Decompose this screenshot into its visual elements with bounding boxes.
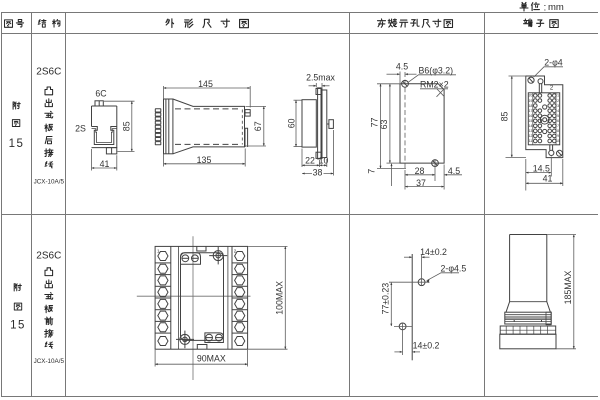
svg-text:B6(φ3.2): B6(φ3.2) (419, 66, 454, 76)
svg-text:8: 8 (557, 129, 559, 133)
svg-text:41: 41 (543, 174, 553, 184)
svg-text:4.5: 4.5 (448, 166, 460, 176)
svg-text:1: 1 (557, 94, 559, 98)
svg-text:11: 11 (529, 139, 533, 143)
svg-text:20: 20 (529, 94, 533, 98)
svg-text:mm: mm (548, 2, 564, 13)
svg-text:67: 67 (253, 121, 263, 131)
svg-text:28: 28 (415, 166, 425, 176)
svg-text:10: 10 (319, 156, 329, 166)
svg-text:15: 15 (529, 119, 533, 123)
svg-text:14±0.2: 14±0.2 (413, 341, 440, 351)
svg-text:2.5max: 2.5max (306, 73, 335, 83)
svg-text:15: 15 (9, 138, 25, 150)
svg-text:14±0.2: 14±0.2 (420, 247, 447, 257)
svg-text:63: 63 (379, 120, 389, 130)
svg-text:2: 2 (557, 99, 559, 103)
svg-text:14.5: 14.5 (533, 163, 550, 173)
svg-text:7: 7 (557, 124, 559, 128)
svg-text:13: 13 (529, 129, 533, 133)
svg-text:6: 6 (557, 119, 559, 123)
svg-text:145: 145 (198, 79, 213, 89)
svg-text:90MAX: 90MAX (197, 353, 226, 363)
svg-text:2S6C: 2S6C (36, 250, 61, 261)
svg-text:2-φ4: 2-φ4 (544, 57, 563, 67)
svg-text:100MAX: 100MAX (274, 281, 284, 315)
svg-text:85: 85 (499, 112, 509, 122)
svg-text:17: 17 (529, 109, 533, 113)
svg-text:135: 135 (197, 155, 212, 165)
svg-text:3: 3 (557, 104, 559, 108)
svg-text:185MAX: 185MAX (563, 271, 573, 305)
svg-text:2S: 2S (75, 124, 86, 134)
svg-text:5: 5 (557, 114, 559, 118)
svg-text:15: 15 (10, 320, 26, 332)
svg-text:6C: 6C (95, 89, 107, 99)
svg-text:77±0.23: 77±0.23 (381, 283, 391, 315)
svg-text:37: 37 (416, 178, 426, 188)
svg-text:14: 14 (529, 124, 533, 128)
svg-text:16: 16 (529, 114, 533, 118)
svg-text:41: 41 (100, 159, 110, 169)
svg-text:38: 38 (313, 167, 323, 177)
svg-text:19: 19 (529, 99, 533, 103)
svg-text:JCX-10A/5: JCX-10A/5 (34, 358, 65, 365)
svg-text:22: 22 (305, 156, 315, 166)
svg-text:9: 9 (557, 134, 559, 138)
svg-text:RM2×2: RM2×2 (420, 79, 449, 89)
svg-text:12: 12 (529, 134, 533, 138)
svg-text:4: 4 (557, 109, 559, 113)
svg-text:2-φ4.5: 2-φ4.5 (441, 263, 467, 273)
svg-text:JCX-10A/5: JCX-10A/5 (34, 179, 65, 186)
svg-text:10: 10 (556, 139, 560, 143)
svg-text:18: 18 (529, 104, 533, 108)
svg-text:4.5: 4.5 (396, 61, 408, 71)
svg-text::: : (544, 2, 547, 13)
svg-text:85: 85 (121, 121, 131, 131)
svg-text:60: 60 (286, 118, 296, 128)
svg-text:2S6C: 2S6C (36, 66, 61, 77)
svg-text:7: 7 (367, 169, 377, 174)
